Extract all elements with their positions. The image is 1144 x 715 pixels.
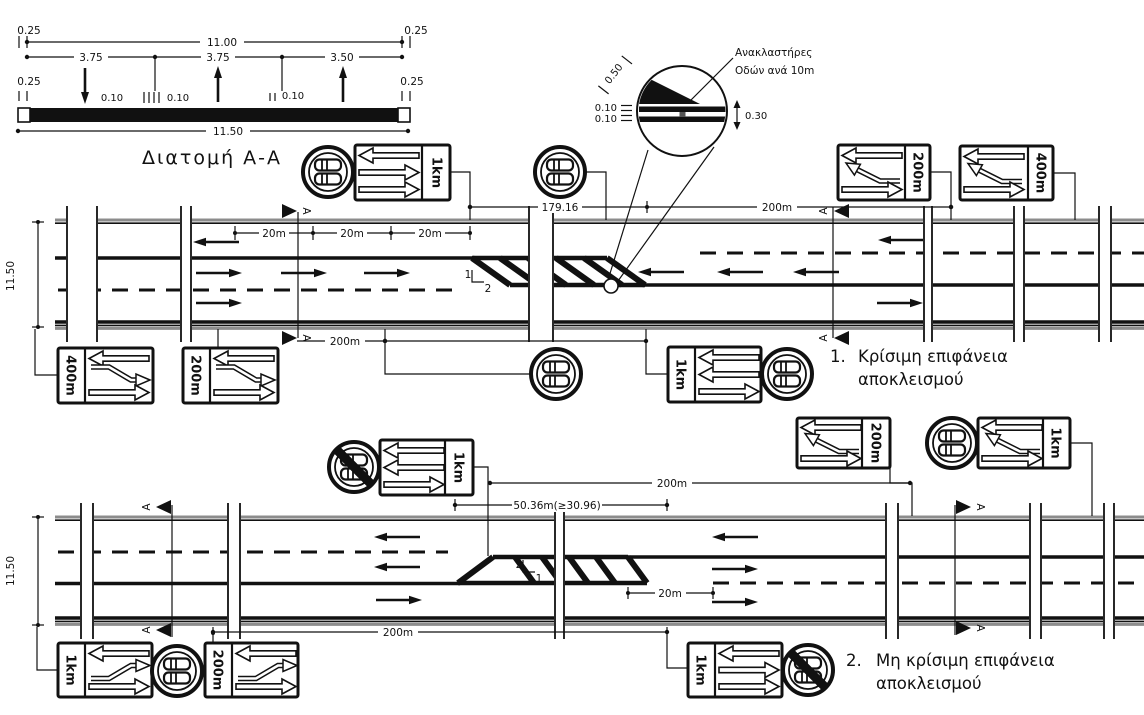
sign-lanechange-200m-bottom-left: 200m <box>205 643 298 697</box>
caption-line1: Μη κρίσιμη επιφάνεια <box>876 651 1055 670</box>
road2-width-dim: 11.50 <box>5 556 17 586</box>
dim-lane2: 3.75 <box>206 52 229 64</box>
dim-200-bottom: 200m <box>330 336 360 348</box>
road2-caption: 2. Μη κρίσιμη επιφάνεια αποκλεισμού <box>846 651 1055 693</box>
svg-text:A: A <box>300 207 312 215</box>
reflector-icon <box>680 112 686 117</box>
no-overtaking-sign-icon <box>303 147 353 197</box>
dim-050-label: 0.50 <box>598 56 632 94</box>
dim-030: 0.30 <box>745 111 767 122</box>
dim-200-top: 200m <box>762 202 792 214</box>
sign-distance-label: 1km <box>1048 427 1063 458</box>
dim-total-top: 11.00 <box>207 37 237 49</box>
dim-shoulder-tr: 0.25 <box>404 25 427 37</box>
sign-distance-label: 400m <box>63 355 78 396</box>
dim-lane3: 3.50 <box>330 52 353 64</box>
reflector-note-line1: Ανακλαστήρες <box>735 47 812 59</box>
road1-plan: 1 2 <box>55 206 1144 342</box>
road2-plan: 2 1 <box>55 503 1144 639</box>
dim-200-bottom: 200m <box>383 627 413 639</box>
no-overtaking-sign-icon <box>927 418 977 468</box>
dim-marking-b: 0.10 <box>167 93 189 104</box>
traffic-arrows-road1 <box>193 236 924 307</box>
drawing-canvas: 11.00 0.25 0.25 3.75 3.75 3.50 0.25 0.25… <box>0 0 1144 715</box>
detail-circle: 0.50 0.10 0.10 0.30 Ανακλαστήρες Οδών αν… <box>595 47 815 281</box>
road1-width-dim: 11.50 <box>5 261 17 291</box>
dim-lane1: 3.75 <box>79 52 102 64</box>
svg-text:A: A <box>974 624 986 632</box>
sign-distance-label: 200m <box>910 152 925 193</box>
dim-shoulder-bl: 0.25 <box>17 76 40 88</box>
dim-shoulder-tl: 0.25 <box>17 25 40 37</box>
sign-distance-label: 1km <box>63 654 78 685</box>
sign-distance-label: 200m <box>210 650 225 691</box>
end-no-overtaking-sign-icon <box>329 442 379 492</box>
dim-50-36: 50.36m(≥30.96) <box>513 500 600 512</box>
cross-section-title: Διατομή Α-Α <box>142 147 282 169</box>
svg-text:2: 2 <box>485 283 492 295</box>
sign-lanechange-400m-bottom-left: 400m <box>58 348 153 403</box>
svg-text:20m: 20m <box>262 228 286 240</box>
sign-distance-label: 1km <box>673 359 688 390</box>
svg-text:2: 2 <box>516 559 523 571</box>
slope-label-road1: 1 2 <box>465 269 492 295</box>
detail-reference-circle <box>604 279 618 293</box>
svg-text:1: 1 <box>536 573 543 585</box>
sign-closure-1km-bottom-mid: 1km <box>688 643 782 697</box>
svg-text:0.50: 0.50 <box>603 62 625 86</box>
sign-closure-1km-bottom-mid: 1km <box>668 347 761 402</box>
closure-hatch-road2 <box>458 557 647 583</box>
no-overtaking-sign-icon <box>762 349 812 399</box>
dim-total-bottom: 11.50 <box>213 126 243 138</box>
svg-text:A: A <box>974 503 986 511</box>
dim-20m: 20m <box>658 588 682 600</box>
dim-179: 179.16 <box>542 202 579 214</box>
svg-text:A: A <box>141 626 153 634</box>
sign-closure-1km-top-left: 1km <box>355 145 450 200</box>
sign-distance-label: 200m <box>188 355 203 396</box>
closure-hatch-road1 <box>472 258 645 285</box>
sign-lanechange-200m-top-right: 200m <box>838 145 930 200</box>
pavement-bar <box>30 108 398 122</box>
road1-caption: 1. Κρίσιμη επιφάνεια αποκλεισμού <box>830 347 1008 389</box>
caption-line1: Κρίσιμη επιφάνεια <box>858 347 1008 366</box>
sign-distance-label: 1km <box>693 654 708 685</box>
caption-line2: αποκλεισμού <box>858 370 964 389</box>
svg-text:20m: 20m <box>418 228 442 240</box>
no-overtaking-sign-icon <box>152 646 202 696</box>
sign-lanechange-1km-bottom-left: 1km <box>58 643 152 697</box>
caption-number: 1. <box>830 347 846 366</box>
sign-distance-label: 1km <box>429 157 444 188</box>
dim-marking-a: 0.10 <box>101 93 123 104</box>
dim-010-top: 0.10 <box>595 103 617 114</box>
dim-marking-c: 0.10 <box>282 91 304 102</box>
sign-lanechange-400m-top-right: 400m <box>960 146 1053 200</box>
dim-010-bottom: 0.10 <box>595 114 617 125</box>
no-overtaking-sign-icon <box>531 349 581 399</box>
sign-closure-1km-top-left: 1km <box>380 440 473 495</box>
end-no-overtaking-sign-icon <box>783 645 833 695</box>
dim-200-top: 200m <box>657 478 687 490</box>
sign-distance-label: 200m <box>868 423 883 464</box>
caption-number: 2. <box>846 651 862 670</box>
caption-line2: αποκλεισμού <box>876 674 982 693</box>
section-marker-a-left: A A <box>282 204 312 345</box>
sign-distance-label: 400m <box>1033 153 1048 194</box>
dim-shoulder-br: 0.25 <box>400 76 423 88</box>
no-overtaking-sign-icon <box>535 147 585 197</box>
svg-text:A: A <box>818 334 830 342</box>
traffic-control-drawing: 11.00 0.25 0.25 3.75 3.75 3.50 0.25 0.25… <box>0 0 1144 715</box>
traffic-arrows-road2 <box>374 533 758 606</box>
svg-text:1: 1 <box>465 269 472 281</box>
reflector-note-line2: Οδών ανά 10m <box>735 65 814 77</box>
svg-text:A: A <box>141 503 153 511</box>
svg-text:A: A <box>300 334 312 342</box>
sign-lanechange-200m-top-right: 200m <box>797 418 890 468</box>
svg-text:20m: 20m <box>340 228 364 240</box>
sign-lanechange-1km-top-right: 1km <box>978 418 1070 468</box>
section-marker-a-right: A A <box>818 204 849 345</box>
sign-lanechange-200m-bottom-left: 200m <box>183 348 278 403</box>
sign-distance-label: 1km <box>451 452 466 483</box>
svg-text:A: A <box>818 207 830 215</box>
